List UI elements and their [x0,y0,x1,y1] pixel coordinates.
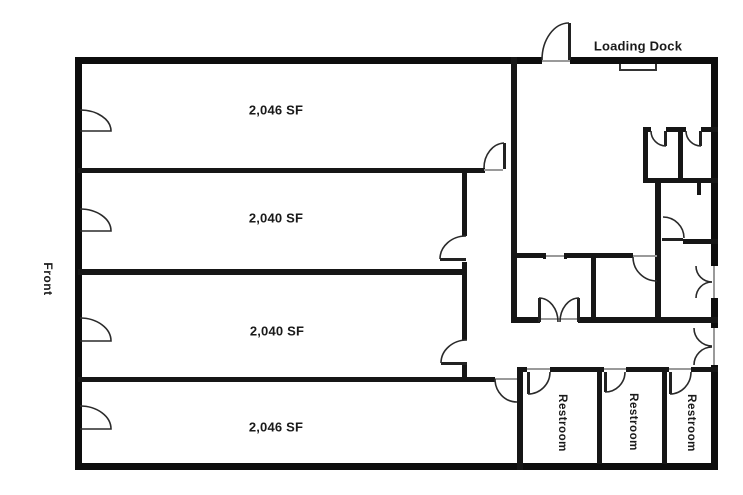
arc-suite4-corridor-door [495,379,517,402]
jamb-officeA-opening-right [564,253,567,259]
jamb-officeA-opening-left [543,253,546,259]
leaf-restroom1-door [527,372,530,394]
leaf-suite1-corridor-door [503,143,506,169]
notch-bottom [619,69,657,71]
threshold-restroom1 [527,368,550,370]
roomC-top-wall [683,239,718,244]
wall-right-upper [711,57,718,266]
restroom-top-wall-a [517,367,527,372]
divider-suite1-suite2 [78,168,485,173]
utility-bottom-wall [643,178,718,183]
suite2-area-label: 2,040 SF [249,212,303,225]
wall-right-lower [711,365,718,470]
front-label: Front [42,262,54,295]
restroom-top-wall-d [691,367,718,372]
threshold-loading-dock-door [542,60,570,62]
arc-suite2-corridor-door [440,236,466,259]
threshold-officeA-opening [543,255,567,257]
wall-top-right [570,57,718,64]
arc-restroom2-door [605,372,625,392]
suite3-area-label: 2,040 SF [250,325,304,338]
threshold-right-wall-lower [713,328,715,365]
threshold-officeB-door [633,255,657,257]
utility-stub-wall [697,183,701,195]
utility-top-wall-c [701,127,718,132]
leaf-officeA-door-left [538,298,541,322]
leaf-suite3-corridor-door [441,362,467,365]
door-thresholds [484,60,715,380]
interior-walls [78,57,718,470]
arc-suite4-front-door [80,406,111,429]
floor-plan: Front Loading Dock 2,046 SF 2,040 SF 2,0… [0,0,743,495]
loading-dock-label: Loading Dock [594,40,682,53]
leaf-loading-dock-door [568,23,571,60]
corridor-left-wall-a [462,168,467,236]
office-row-top-wall-a [513,253,543,258]
leaf-roomC-door [662,238,683,241]
threshold-officeA-double-door [540,318,578,320]
corridor-top-wall-a [511,317,540,323]
loading-dock-notch [619,64,657,71]
arc-right-wall-lower-door-a [694,328,712,346]
door-leaves [440,23,702,394]
arc-right-wall-upper-door-b [696,282,712,298]
restroom1-label: Restroom [555,394,567,452]
officeB-right-wall [655,183,661,323]
restroom-divider-1 [597,372,602,464]
wall-left [75,57,82,470]
exterior-walls [75,57,718,470]
arc-roomC-door [663,217,684,238]
leaf-restroom3-door [669,372,672,394]
threshold-suite1-door [484,169,503,171]
suite4-right-wall [517,367,523,470]
corridor-left-wall-c [462,365,467,381]
leaf-restroom2-door [604,372,607,392]
threshold-suite4-door [495,378,517,380]
wall-top-left [75,57,542,64]
leaf-officeA-door-right [577,298,580,322]
threshold-restroom3 [669,368,691,370]
suite4-area-label: 2,046 SF [249,421,303,434]
arc-officeB-door [633,257,657,281]
corridor-top-wall-b [578,317,718,323]
threshold-restroom2 [604,368,626,370]
arc-restroom1-door [528,372,550,394]
divider-suite3-suite4 [78,377,495,382]
arc-right-wall-lower-door-b [694,347,712,365]
office-divider-wall [591,258,596,322]
leaf-suite2-corridor-door [440,258,466,261]
restroom-top-wall-c [626,367,669,372]
threshold-right-wall-upper [713,266,715,298]
notch-right [655,64,657,71]
arc-restroom3-door [670,372,691,394]
arc-utility-right-door [686,131,701,146]
arc-suite3-front-door [80,318,111,341]
restroom-top-wall-b [550,367,604,372]
wall-bottom [75,463,718,470]
wall-right-mid [711,298,718,328]
office-row-top-wall-b [567,253,633,258]
arc-suite1-corridor-door [484,143,504,168]
utility-left-wall [643,127,648,183]
arc-loading-dock-door [542,23,569,60]
arc-suite3-corridor-door [441,340,467,363]
restroom-divider-2 [662,372,667,464]
leaf-utility-right-door [699,131,702,146]
arc-suite2-front-door [80,209,111,231]
restroom3-label: Restroom [684,394,696,452]
arc-suite1-front-door [80,110,111,131]
divider-suite2-suite3 [78,269,467,275]
arc-right-wall-upper-door-a [696,266,712,282]
restroom2-label: Restroom [626,393,638,451]
utility-divider-wall [678,127,683,183]
arc-utility-left-door [651,131,666,146]
corridor-left-wall-b [462,262,467,340]
leaf-utility-left-door [664,131,667,146]
corridor-right-wall [511,57,517,323]
suite1-area-label: 2,046 SF [249,104,303,117]
